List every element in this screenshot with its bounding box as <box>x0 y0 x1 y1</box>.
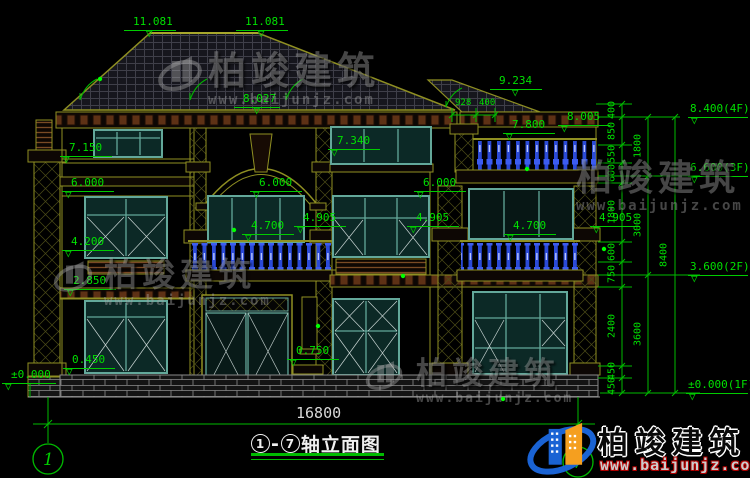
elev-6000-center: 6.000▽ <box>250 177 302 192</box>
elev-6000-right: 6.000▽ <box>414 177 466 192</box>
overall-dimension: 16800 <box>293 406 344 421</box>
elev-7150: 7.150▽ <box>60 142 112 157</box>
elev-7800: 7.800▽ <box>503 119 555 134</box>
spandrel-left <box>88 261 164 274</box>
elev-eave: 8.027▽ <box>234 93 280 108</box>
title-underline-thick <box>251 453 384 456</box>
chain-600a: 600 <box>607 164 618 182</box>
elev-ridge-right: 11.081▽ <box>236 16 288 31</box>
tower-balcony <box>186 241 336 281</box>
chain-750: 750 <box>607 265 618 283</box>
left-pilaster <box>28 120 66 397</box>
elev-4700-right: 4.700▽ <box>504 220 556 235</box>
chain-2400: 2400 <box>607 314 618 338</box>
elev-4905-center: 4.905▽ <box>294 212 346 227</box>
chain-total-8400: 8400 <box>659 243 670 267</box>
level-1f: ±0.000(1F)▽ <box>686 379 748 394</box>
elev-6000-left: 6.000▽ <box>62 177 114 192</box>
footer-brand-url: www.baijunjz.com <box>600 456 750 474</box>
elev-secondary-ridge: 9.234▽ <box>490 75 542 90</box>
right-balcony-2f <box>457 241 583 281</box>
chain-550: 550 <box>607 145 618 163</box>
title-underline-thin <box>251 459 384 460</box>
elev-0450: 0.450▽ <box>63 354 115 369</box>
dim-928: 928 <box>455 99 471 108</box>
window-1f-right <box>473 292 567 374</box>
level-3f: 6.600(3F)▽ <box>688 162 748 177</box>
cad-elevation-screenshot: 11.081▽ 11.081▽ 9.234▽ 8.027▽ 7.150▽ 6.0… <box>0 0 750 478</box>
chain-600b: 600 <box>607 243 618 261</box>
elev-4200: 4.200▽ <box>62 236 114 251</box>
title-axis-start: 1 <box>251 434 270 453</box>
elev-ridge-left: 11.081▽ <box>124 16 176 31</box>
elev-7340: 7.340▽ <box>328 135 380 150</box>
elev-ground-left: ±0.000▽ <box>2 369 56 384</box>
title-axis-end: 7 <box>281 434 300 453</box>
elev-2850: 2.850▽ <box>64 275 116 290</box>
dim-400: 400 <box>479 99 495 108</box>
chain-mid-3000: 3000 <box>633 213 644 237</box>
chain-mid-3600: 3600 <box>633 322 644 346</box>
elev-8005: 8.005▽ <box>558 111 610 126</box>
elev-4905-mid: 4.905▽ <box>407 212 459 227</box>
window-1f-mid <box>333 299 399 375</box>
axis-bubble-1: 1 <box>43 450 54 470</box>
level-2f: 3.600(2F)▽ <box>688 261 748 276</box>
level-4f: 8.400(4F)▽ <box>688 103 748 118</box>
chain-450b: 450 <box>607 377 618 395</box>
chain-mid-1800: 1800 <box>633 134 644 158</box>
chain-400: 400 <box>607 101 618 119</box>
title-dash: - <box>271 433 280 455</box>
elev-0750: 0.750▽ <box>287 345 339 360</box>
spandrel-mid <box>336 259 426 274</box>
footer-brand-logo: 柏竣建筑 www.baijunjz.com <box>526 418 750 478</box>
chain-850: 850 <box>607 122 618 140</box>
stone-base <box>60 375 598 397</box>
brand-logo-color-icon <box>526 418 600 478</box>
elev-4700-center: 4.700▽ <box>242 220 294 235</box>
chain-1800: 1800 <box>607 200 618 224</box>
